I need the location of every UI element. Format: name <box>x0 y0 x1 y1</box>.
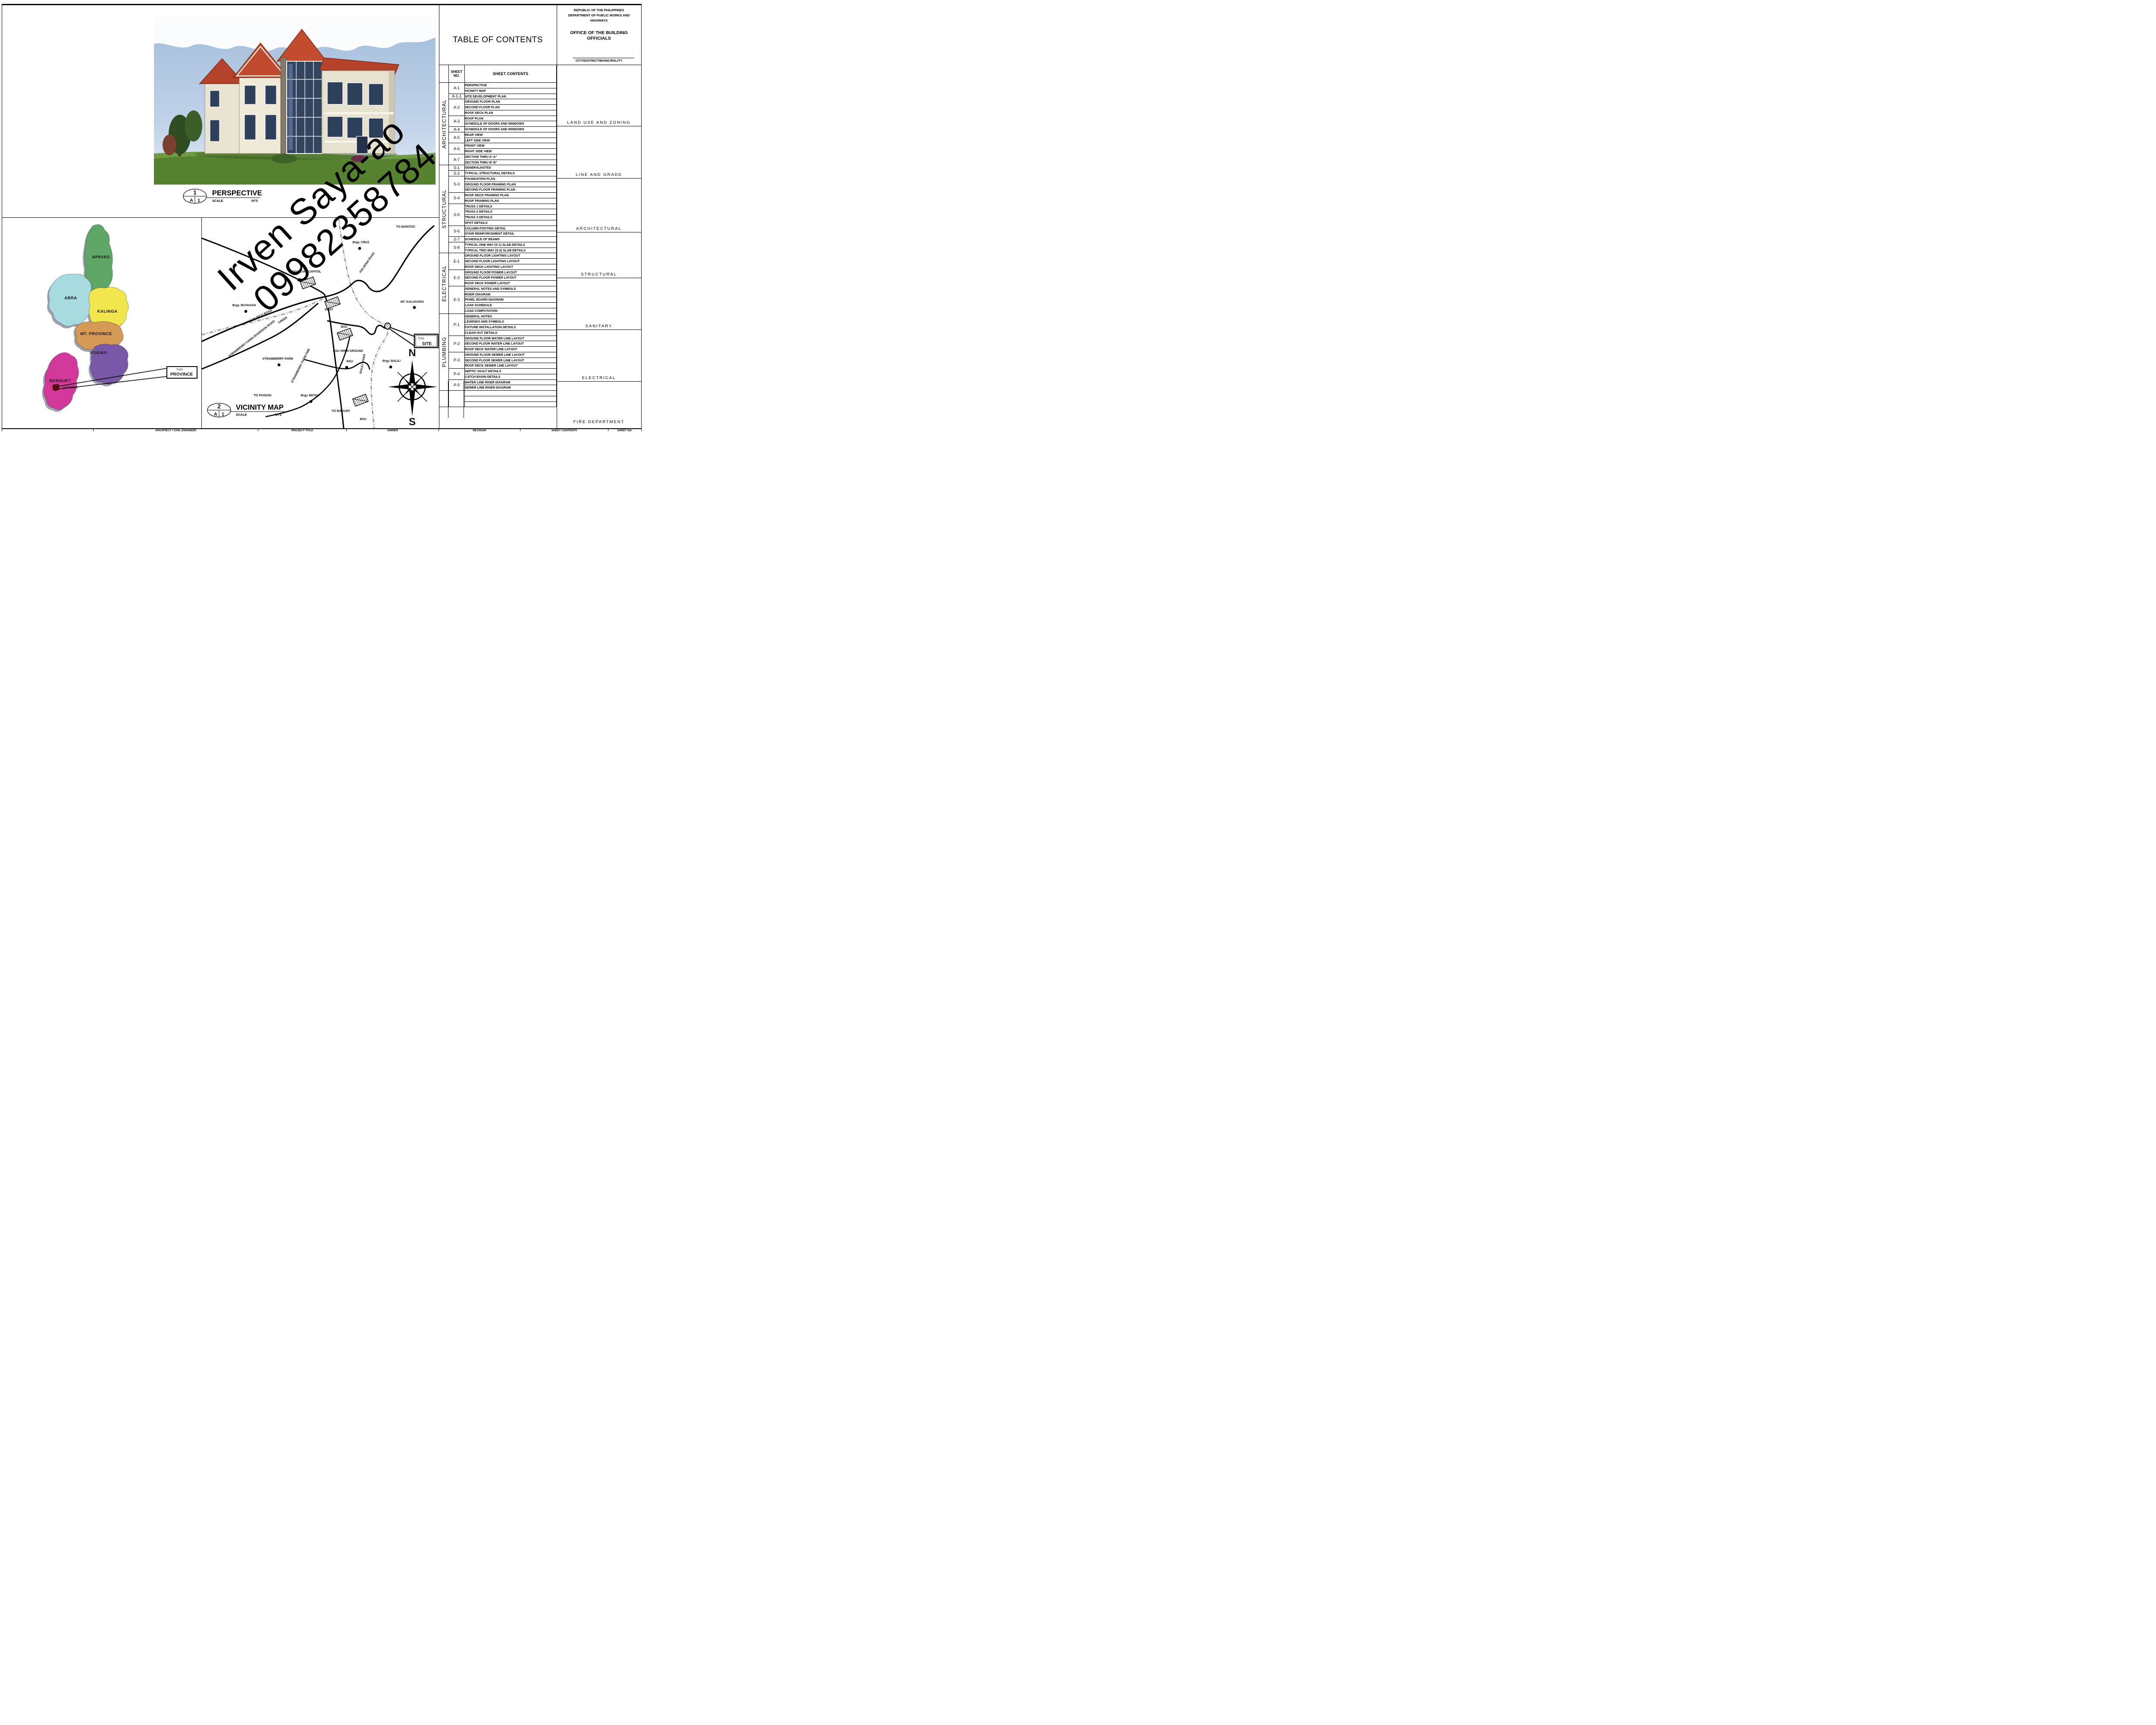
poi-dot <box>345 366 348 369</box>
toc-sheet-content: SECTION THRU B'-B" <box>465 160 557 165</box>
toc-sheet-content: TRUSS 1 DETAILS <box>465 204 557 209</box>
vicinity-buildings <box>300 277 368 406</box>
toc-header-sheet-no: SHEET NO. <box>449 65 465 83</box>
toc-row: A-6FRONT VIEW <box>439 143 557 149</box>
house-render <box>154 16 436 185</box>
toc-row: STRUCTURALS-1GENERALNOTES <box>439 165 557 171</box>
vicinity-label-brgy-buyagan: Brgy. BUYAGAN <box>232 304 256 307</box>
toc-sheet-no: E-3 <box>449 286 465 314</box>
right-panel-border <box>557 5 557 428</box>
hatched-building <box>325 297 340 309</box>
toc-category: ELECTRICAL <box>439 253 449 314</box>
toc-row: P-4SEPTIC VAULT DETAILS <box>439 369 557 374</box>
sheet-ref-number: 1 <box>197 198 200 203</box>
toc-sheet-content: GROUND FLOOR WATER LINE LAYOUT <box>465 336 557 341</box>
vicinity-label-strawberry-farm-fmr: STRAWBERRY FARM FMR <box>291 348 311 383</box>
baguio-road <box>201 238 344 428</box>
red-shrub <box>163 135 176 155</box>
right-panel-divider <box>557 178 641 179</box>
toc-sheet-content: SECOND FLOOR FRAMING PLAN <box>465 187 557 193</box>
agency-line3: HIGHWAYS <box>557 19 641 22</box>
toc-sheet-content: ROOF FRAMING PLAN <box>465 198 557 204</box>
toc-sheet-no: P-4 <box>449 369 465 380</box>
perspective-title-bubble: 1 A 1 <box>181 187 211 206</box>
toc-sheet-content: ROOF DECK PLAN <box>465 110 557 116</box>
poi-dot <box>310 400 313 403</box>
province-map: LA TRINIDAD APAYAOABRAKALINGAMT. PROVINC… <box>2 217 201 428</box>
toc-row: P-3GROUND FLOOR SEWER LINE LAYOUT <box>439 352 557 358</box>
toc-sheet-no: A-6 <box>449 143 465 154</box>
flower-bush <box>351 155 367 162</box>
toc-sheet-content: LOAD SCHEDULE <box>465 303 557 308</box>
toc-sheet-content: FRONT VIEW <box>465 143 557 149</box>
vicinity-label-mt-kalugong: MT. KALUGONG <box>401 301 424 304</box>
vicinity-label-bsu: BSU <box>341 326 348 329</box>
toc-sheet-no: E-2 <box>449 270 465 286</box>
office-title: OFFICE OF THE BUILDING OFFICIALS <box>565 30 633 41</box>
province-label-kalinga: KALINGA <box>97 309 118 314</box>
title-block-strip: ARCHITECT / CIVIL ENGINEERPROJECT TITLEO… <box>2 428 641 431</box>
vicinity-title-bubble: 2 A 1 <box>205 401 235 420</box>
halsema-road <box>323 226 434 297</box>
toc-row: E-3GENERAL NOTES AND SYMBOLS <box>439 286 557 292</box>
vicinity-scale-label: SCALE <box>236 413 247 417</box>
vicinity-scale-value: NTS <box>275 413 282 417</box>
strip-cell-revision: REVISION <box>439 429 520 431</box>
perspective-title: PERSPECTIVE <box>212 189 262 198</box>
toc-sheet-content: GENERALNOTES <box>465 165 557 171</box>
toc-row: A-1-1SITE DEVELOPMENT PLAN <box>439 94 557 99</box>
toc-category: ARCHITECTURAL <box>439 83 449 165</box>
toc-sheet-no: S-4 <box>449 193 465 204</box>
toc-sheet-content: LOAD COMPUTATION <box>465 308 557 314</box>
toc-row: ARCHITECTURALA-1PERSPECTIVE <box>439 83 557 88</box>
strip-cell-blank <box>2 429 94 431</box>
toc-sheet-no: S-7 <box>449 237 465 242</box>
hatched-building <box>337 328 353 340</box>
toc-sheet-no: S-5 <box>449 204 465 226</box>
poi-dot <box>278 364 281 367</box>
province-label-apayao: APAYAO <box>92 255 110 260</box>
toc-sheet-no: A-2 <box>449 99 465 116</box>
toc-sheet-content: SECTION THRU A'-A" <box>465 154 557 160</box>
toc-sheet-no: P-5 <box>449 379 465 391</box>
detail-number: 2 <box>217 403 221 410</box>
agency-line1: REPUBLIC OF THE PHILIPPINES <box>557 8 641 12</box>
toc-table: SHEET NO. SHEET CONTENTS ARCHITECTURALA-… <box>439 65 557 407</box>
toc-row: A-5REAR VIEW <box>439 132 557 138</box>
toc-sheet-content: RISER DIAGRAM <box>465 292 557 297</box>
vicinity-map: THIS SITE N S TO BONTOCBrgy. CRUZHALSEMA… <box>201 217 439 428</box>
toc-sheet-content: WATER LINE RISER DIAGRAM <box>465 379 557 385</box>
strip-cell-project-title: PROJECT TITLE <box>258 429 347 431</box>
toc-sheet-content: SCHEDULE OF BEAMS <box>465 237 557 242</box>
toc-sheet-content: STAIR REINFORCEMENT DETAIL <box>465 231 557 237</box>
toc-sheet-content: SECOND FLOOR POWER LAYOUT <box>465 275 557 281</box>
sheet-ref-letter: A <box>190 198 193 203</box>
toc-header-spacer <box>439 65 449 83</box>
vicinity-title-underline <box>230 411 285 412</box>
toc-sheet-content: SITE DEVELOPMENT PLAN <box>465 94 557 99</box>
vicinity-label-strawberry-farm: STRAWBERRY FARM <box>262 358 293 361</box>
toc-row: S-6COLUMN FOOTING DETAIL <box>439 226 557 231</box>
toc-sheet-no: A-3 <box>449 116 465 127</box>
strip-cell-sheet-no-: SHEET NO. <box>608 429 641 431</box>
toc-sheet-no: S-8 <box>449 242 465 253</box>
toc-row: A-4SCHEDULE OF DOORS AND WINDOWS <box>439 127 557 132</box>
right-panel-header-divider <box>557 65 641 65</box>
toc-sheet-content: PANEL BOARD DIAGRAM <box>465 297 557 303</box>
toc-row: P-2GROUND FLOOR WATER LINE LAYOUT <box>439 336 557 341</box>
toc-sheet-content: SPOT DETAILS <box>465 220 557 226</box>
toc-sheet-content <box>465 396 557 401</box>
toc-sheet-no: E-1 <box>449 253 465 270</box>
toc-row: S-3FOUNDATION PLAN <box>439 176 557 182</box>
toc-sheet-content: TYPICAL ONE WAY (S-1) SLAB DETAILS <box>465 242 557 248</box>
toc-row: ELECTRICALE-1GROUND FLOOR LIGHTING LAYOU… <box>439 253 557 259</box>
toc-sheet-content: TRUSS 3 DETAILS <box>465 215 557 220</box>
toc-sheet-no: P-2 <box>449 336 465 352</box>
vicinity-label-bsu: BSU <box>347 360 353 363</box>
compass-rose <box>388 360 437 416</box>
lower-road <box>305 360 370 369</box>
site-box-this: THIS <box>418 337 424 340</box>
toc-sheet-content: GROUND FLOOR LIGHTING LAYOUT <box>465 253 557 259</box>
toc-row: PLUMBINGP-1GENERAL NOTES <box>439 314 557 319</box>
toc-sheet-content <box>465 391 557 396</box>
toc-row: E-2GROUND FLOOR POWER LAYOUT <box>439 270 557 275</box>
vicinity-label-provincial-capitol: PROVINCIAL CAPITOL <box>288 270 321 273</box>
toc-row: S-4ROOF DECK FRAMING PLAN <box>439 193 557 198</box>
section-label-fire-department: FIRE DEPARTMENT <box>557 420 641 424</box>
toc-sheet-no: A-7 <box>449 154 465 165</box>
bush <box>271 154 297 163</box>
callout-this: THIS <box>176 368 183 371</box>
toc-sheet-content: ROOF DECK FRAMING PLAN <box>465 193 557 198</box>
toc-sheet-content: ROOF DECK LIGHTING LAYOUT <box>465 264 557 270</box>
toc-sheet-content: SECOND FLOOR LIGHTING LAYOUT <box>465 259 557 264</box>
compass-north: N <box>408 347 416 359</box>
right-panel-divider <box>557 232 641 232</box>
section-label-structural: STRUCTURAL <box>557 272 641 277</box>
sheet-ref-letter: A <box>214 412 217 417</box>
toc-sheet-content: TRUSS 2 DETAILS <box>465 209 557 215</box>
vicinity-label-to-bontoc: TO BONTOC <box>396 225 416 229</box>
toc-sheet-no: P-1 <box>449 314 465 336</box>
toc-sheet-no: S-3 <box>449 176 465 192</box>
section-label-architectural: ARCHITECTURAL <box>557 226 641 231</box>
agency-line2: DEPARTMENT OF PUBLIC WORKS AND <box>557 13 641 17</box>
vicinity-label-brgy-balili: Brgy. BALILI <box>382 360 401 363</box>
vicinity-label-to-baguio: TO BAGUIO <box>332 409 350 413</box>
toc-sheet-content: FIXTURE INSTALLATION DETAILS <box>465 325 557 330</box>
drawing-sheet: 1 A 1 PERSPECTIVE SCALE NTS Irven Saya-a… <box>2 4 642 431</box>
toc-sheet-no: S-2 <box>449 171 465 176</box>
province-label-ifugao: IFUGAO <box>90 351 107 355</box>
site-access-road <box>328 321 387 334</box>
toc-sheet-content: CATCH BASIN DETAILS <box>465 374 557 379</box>
poi-dot <box>358 247 361 250</box>
toc-sheet-content: SECOND FLOOR PLAN <box>465 105 557 110</box>
vicinity-label-halsema-road: HALSEMA ROAD <box>359 252 376 274</box>
vicinity-label-bsu-open-ground: BSU OPEN GROUND <box>333 350 363 353</box>
toc-row: S-5TRUSS 1 DETAILS <box>439 204 557 209</box>
vicinity-labels: TO BONTOCBrgy. CRUZHALSEMA ROADPROVINCIA… <box>228 225 424 421</box>
toc-sheet-content: TYPICAL TWO WAY (S-2) SLAB DETAILS <box>465 248 557 253</box>
toc-sheet-content: FOUNDATION PLAN <box>465 176 557 182</box>
strip-cell-owner: OWNER <box>347 429 439 431</box>
right-panel-divider <box>557 278 641 278</box>
toc-row: S-8TYPICAL ONE WAY (S-1) SLAB DETAILS <box>439 242 557 248</box>
province-ifugao <box>90 344 128 384</box>
toc-sheet-no: A-4 <box>449 127 465 132</box>
vicinity-label-balili-river: BALILI RIVER <box>359 354 366 374</box>
toc-sheet-content: SCHEDULE OF DOORS AND WINDOWS <box>465 121 557 127</box>
toc-sheet-no: A-1 <box>449 83 465 94</box>
vicinity-label-to-puguis: TO PUGUIS <box>254 393 271 397</box>
vicinity-label-bsu: BSU <box>360 418 367 421</box>
right-panel-divider <box>557 126 641 126</box>
section-label-land-use-and-zoning: LAND USE AND ZONING <box>557 120 641 125</box>
city-district-municipality: CITY/DISTRICT/MUNICIPALITY <box>557 59 641 63</box>
compass-south: S <box>409 416 416 428</box>
toc-sheet-content: TYPICAL STRUCTURAL DETAILS <box>465 171 557 176</box>
section-label-sanitary: SANITARY <box>557 324 641 329</box>
province-label-benguet: BENGUET <box>50 379 71 383</box>
toc-sheet-content: SECOND FLOOR WATER LINE LAYOUT <box>465 341 557 347</box>
callout-province: PROVINCE <box>170 372 193 377</box>
toc-sheet-content: GROUND FLOOR POWER LAYOUT <box>465 270 557 275</box>
strip-cell-sheet-contents: SHEET CONTENTS <box>520 429 608 431</box>
perspective-title-underline <box>206 198 260 198</box>
detail-number: 1 <box>193 189 197 196</box>
toc-category: STRUCTURAL <box>439 165 449 253</box>
toc-sheet-no: S-6 <box>449 226 465 237</box>
site-marker <box>385 323 391 329</box>
vicinity-title: VICINITY MAP <box>236 404 284 412</box>
toc-header-contents: SHEET CONTENTS <box>465 65 557 83</box>
section-label-line-and-grade: LINE AND GRADE <box>557 172 641 177</box>
vicinity-label-dost: DOST <box>325 308 333 311</box>
province-label-abra: ABRA <box>64 296 77 301</box>
toc-sheet-content: VICINITY MAP <box>465 88 557 94</box>
diversion-road <box>201 304 318 369</box>
strip-cell-architect-civil-engineer: ARCHITECT / CIVIL ENGINEER <box>94 429 258 431</box>
toc-sheet-no: A-5 <box>449 132 465 143</box>
toc-category <box>439 391 449 407</box>
vicinity-label-creek: CREEK <box>278 316 288 324</box>
toc-sheet-content: RIGHT SIDE VIEW <box>465 149 557 154</box>
toc-sheet-content: SECOND FLOOR SEWER LINE LAYOUT <box>465 358 557 363</box>
toc-sheet-content: ROOF DECK POWER LAYOUT <box>465 281 557 286</box>
toc-title: TABLE OF CONTENTS <box>439 35 557 45</box>
toc-sheet-no: A-1-1 <box>449 94 465 99</box>
toc-sheet-content: GENERAL NOTES AND SYMBOLS <box>465 286 557 292</box>
toc-sheet-content: ROOF DECK WATER LINE LAYOUT <box>465 347 557 352</box>
toc-sheet-content: LEGENDS AND SYMBOLS <box>465 319 557 325</box>
perspective-scale-value: NTS <box>251 199 258 203</box>
toc-sheet-content: REAR VIEW <box>465 132 557 138</box>
vicinity-label-brgy-betag: Brgy. BETAG <box>301 394 320 397</box>
toc-cat-col-extension <box>448 381 448 418</box>
toc-sheet-no <box>449 391 465 407</box>
hatched-building <box>353 394 368 406</box>
city-underline <box>573 58 634 58</box>
toc-sheet-content: CLEAN OUT DETAILS <box>465 330 557 336</box>
toc-sheet-content: PERSPECTIVE <box>465 83 557 88</box>
sheet-page: 1 A 1 PERSPECTIVE SCALE NTS Irven Saya-a… <box>0 0 642 431</box>
toc-sheet-no: S-1 <box>449 165 465 171</box>
toc-sheet-content: GROUND FLOOR PLAN <box>465 99 557 105</box>
right-panel-divider <box>557 381 641 382</box>
toc-sheet-content <box>465 401 557 407</box>
toc-category: PLUMBING <box>439 314 449 391</box>
toc-sheet-content: SEPTIC VAULT DETAILS <box>465 369 557 374</box>
toc-row: S-2TYPICAL STRUCTURAL DETAILS <box>439 171 557 176</box>
vicinity-label-brgy-cruz: Brgy. CRUZ <box>353 241 370 244</box>
tree <box>185 110 202 141</box>
buyagan-pico-road <box>201 297 323 342</box>
toc-row: A-3ROOF PLAN <box>439 116 557 121</box>
sheet-ref-number: 1 <box>222 412 224 417</box>
toc-row: A-2GROUND FLOOR PLAN <box>439 99 557 105</box>
toc-row: S-7SCHEDULE OF BEAMS <box>439 237 557 242</box>
toc-sheet-content: ROOF PLAN <box>465 116 557 121</box>
toc-sheet-content: GROUND FLOOR FRAMING PLAN <box>465 182 557 187</box>
section-label-electrical: ELECTRICAL <box>557 376 641 380</box>
toc-sheet-no: P-3 <box>449 352 465 368</box>
toc-sheet-content: SCHEDULE OF DOORS AND WINDOWS <box>465 127 557 132</box>
toc-sheet-content: GENERAL NOTES <box>465 314 557 319</box>
toc-row: A-7SECTION THRU A'-A" <box>439 154 557 160</box>
province-label-mt-province: MT. PROVINCE <box>80 332 112 336</box>
perspective-scale-label: SCALE <box>212 199 223 203</box>
toc-sheet-content: LEFT SIDE VIEW <box>465 138 557 143</box>
site-box-site: SITE <box>422 342 432 346</box>
toc-sheet-content: GROUND FLOOR SEWER LINE LAYOUT <box>465 352 557 358</box>
toc-no-col-extension <box>464 381 464 418</box>
poi-dot <box>389 366 392 369</box>
toc-sheet-content: ROOF DECK SEWER LINE LAYOUT <box>465 363 557 369</box>
toc-sheet-content: COLUMN FOOTING DETAIL <box>465 226 557 231</box>
poi-dot <box>244 310 248 313</box>
right-panel-divider <box>557 329 641 330</box>
toc-row <box>439 391 557 396</box>
poi-dot <box>413 306 416 309</box>
toc-sheet-content: SEWER LINE RISER DIAGRAM <box>465 385 557 391</box>
toc-row: P-5WATER LINE RISER DIAGRAM <box>439 379 557 385</box>
